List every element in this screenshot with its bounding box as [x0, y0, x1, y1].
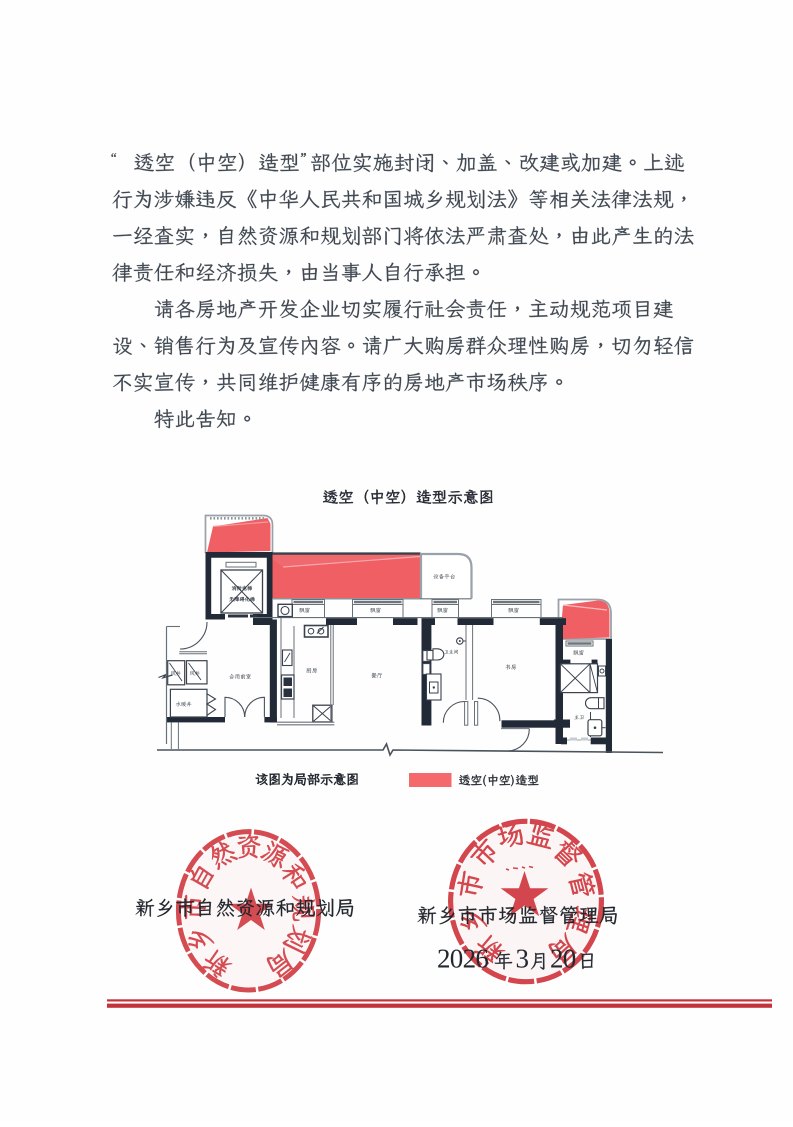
svg-text:20: 20 [550, 944, 576, 974]
svg-text:2026: 2026 [437, 944, 488, 974]
svg-text:3: 3 [516, 944, 530, 974]
